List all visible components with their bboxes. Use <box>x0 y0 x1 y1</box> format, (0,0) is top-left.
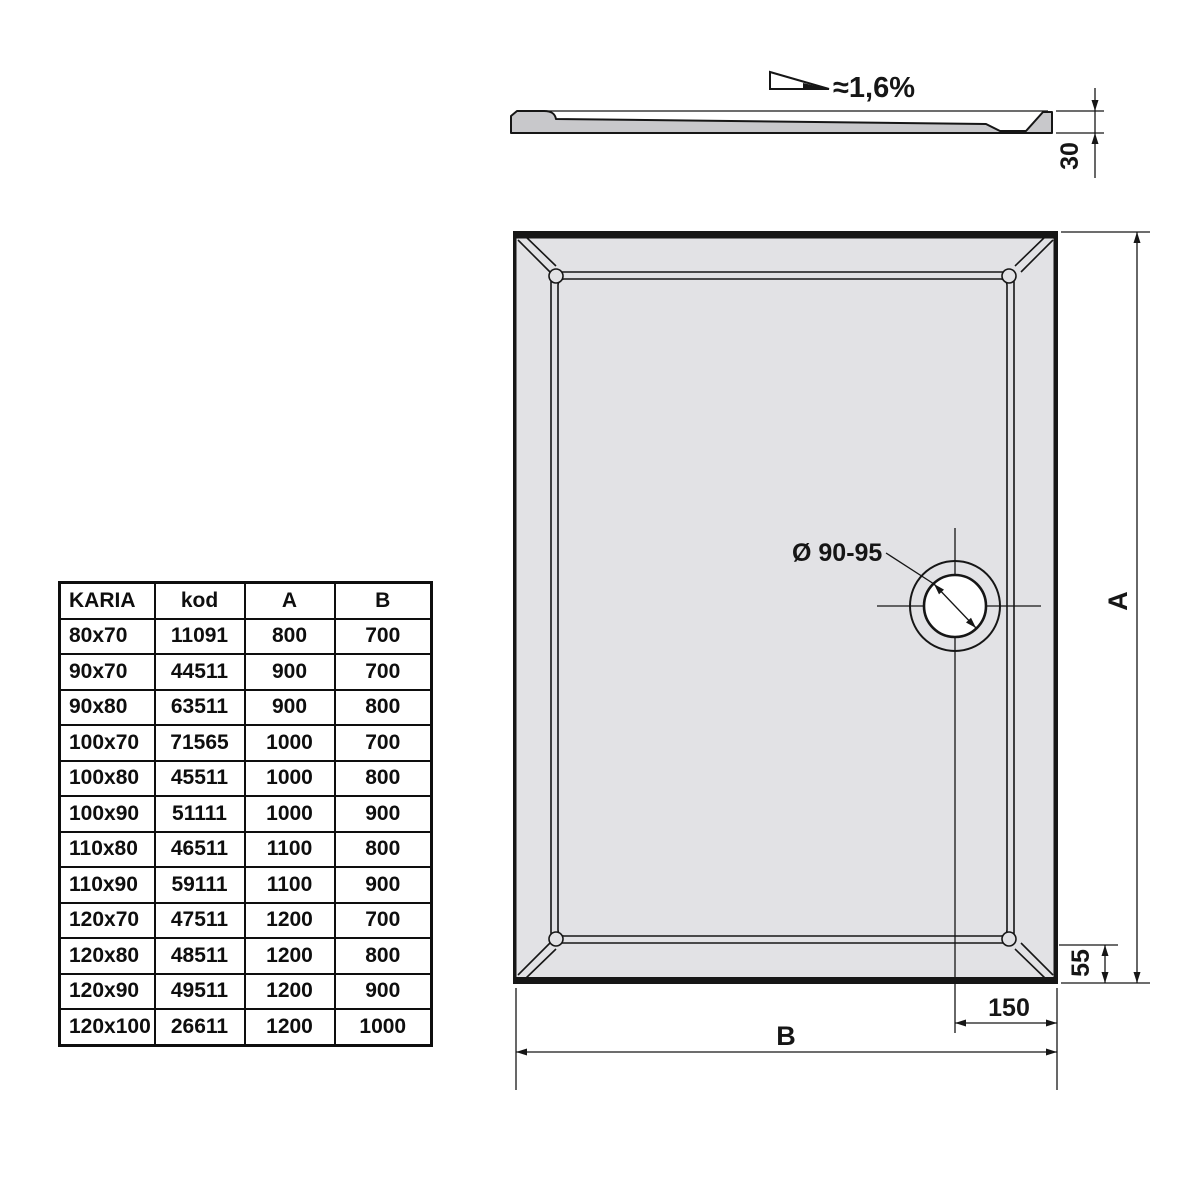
dim-150-label: 150 <box>988 994 1030 1022</box>
dim-B-label: B <box>776 1021 796 1051</box>
header-karia: KARIA <box>60 583 155 619</box>
table-cell: 700 <box>335 903 432 939</box>
table-row: 80x7011091800700 <box>60 619 432 655</box>
section-view: ≈1,6% 30 <box>511 72 1104 178</box>
table-cell: 45511 <box>155 761 245 797</box>
table-cell: 120x100 <box>60 1009 155 1045</box>
size-table: KARIA kod A B 80x701109180070090x7044511… <box>58 581 433 1047</box>
table-cell: 800 <box>335 690 432 726</box>
table-cell: 47511 <box>155 903 245 939</box>
table-row: 120x1002661112001000 <box>60 1009 432 1045</box>
table-cell: 44511 <box>155 654 245 690</box>
slope-triangle-icon <box>770 72 829 89</box>
table-cell: 63511 <box>155 690 245 726</box>
table-cell: 1000 <box>245 725 335 761</box>
table-cell: 110x80 <box>60 832 155 868</box>
table-cell: 46511 <box>155 832 245 868</box>
table-cell: 120x90 <box>60 974 155 1010</box>
table-cell: 800 <box>335 761 432 797</box>
table-cell: 900 <box>335 867 432 903</box>
table-cell: 1200 <box>245 938 335 974</box>
table-row: 90x8063511900800 <box>60 690 432 726</box>
table-cell: 800 <box>335 938 432 974</box>
drain-label: Ø 90-95 <box>792 539 882 567</box>
table-cell: 800 <box>245 619 335 655</box>
header-a: A <box>245 583 335 619</box>
table-row: 100x70715651000700 <box>60 725 432 761</box>
table-cell: 800 <box>335 832 432 868</box>
table-cell: 80x70 <box>60 619 155 655</box>
table-cell: 1200 <box>245 903 335 939</box>
table-cell: 1200 <box>245 974 335 1010</box>
table-cell: 120x80 <box>60 938 155 974</box>
table-cell: 700 <box>335 725 432 761</box>
table-row: 120x70475111200700 <box>60 903 432 939</box>
table-cell: 90x70 <box>60 654 155 690</box>
table-cell: 100x90 <box>60 796 155 832</box>
dim-55-label: 55 <box>1067 949 1095 977</box>
table-cell: 900 <box>245 654 335 690</box>
table-cell: 900 <box>245 690 335 726</box>
table-row: 110x80465111100800 <box>60 832 432 868</box>
table-cell: 1100 <box>245 832 335 868</box>
table-row: 110x90591111100900 <box>60 867 432 903</box>
table-cell: 1100 <box>245 867 335 903</box>
table-cell: 700 <box>335 619 432 655</box>
header-kod: kod <box>155 583 245 619</box>
table-cell: 59111 <box>155 867 245 903</box>
table-row: 120x90495111200900 <box>60 974 432 1010</box>
technical-drawing-page: { "section_view": { "slope_label": "≈1,6… <box>0 0 1200 1200</box>
size-table-body: 80x701109180070090x704451190070090x80635… <box>60 619 432 1046</box>
table-cell: 71565 <box>155 725 245 761</box>
slope-label: ≈1,6% <box>833 72 915 104</box>
plan-view: Ø 90-95 A 55 150 <box>513 231 1150 1090</box>
table-row: 90x7044511900700 <box>60 654 432 690</box>
table-cell: 900 <box>335 974 432 1010</box>
table-cell: 700 <box>335 654 432 690</box>
table-header-row: KARIA kod A B <box>60 583 432 619</box>
table-cell: 110x90 <box>60 867 155 903</box>
dim-30-label: 30 <box>1056 142 1084 170</box>
header-b: B <box>335 583 432 619</box>
section-profile <box>511 111 1052 133</box>
table-cell: 120x70 <box>60 903 155 939</box>
table-cell: 11091 <box>155 619 245 655</box>
table-row: 100x90511111000900 <box>60 796 432 832</box>
table-cell: 26611 <box>155 1009 245 1045</box>
table-cell: 1000 <box>245 796 335 832</box>
table-cell: 1200 <box>245 1009 335 1045</box>
table-cell: 48511 <box>155 938 245 974</box>
table-cell: 1000 <box>335 1009 432 1045</box>
table-cell: 100x80 <box>60 761 155 797</box>
table-cell: 90x80 <box>60 690 155 726</box>
table-cell: 1000 <box>245 761 335 797</box>
dim-A-label: A <box>1103 591 1133 611</box>
table-cell: 51111 <box>155 796 245 832</box>
table-row: 100x80455111000800 <box>60 761 432 797</box>
table-row: 120x80485111200800 <box>60 938 432 974</box>
table-cell: 49511 <box>155 974 245 1010</box>
table-cell: 900 <box>335 796 432 832</box>
table-cell: 100x70 <box>60 725 155 761</box>
